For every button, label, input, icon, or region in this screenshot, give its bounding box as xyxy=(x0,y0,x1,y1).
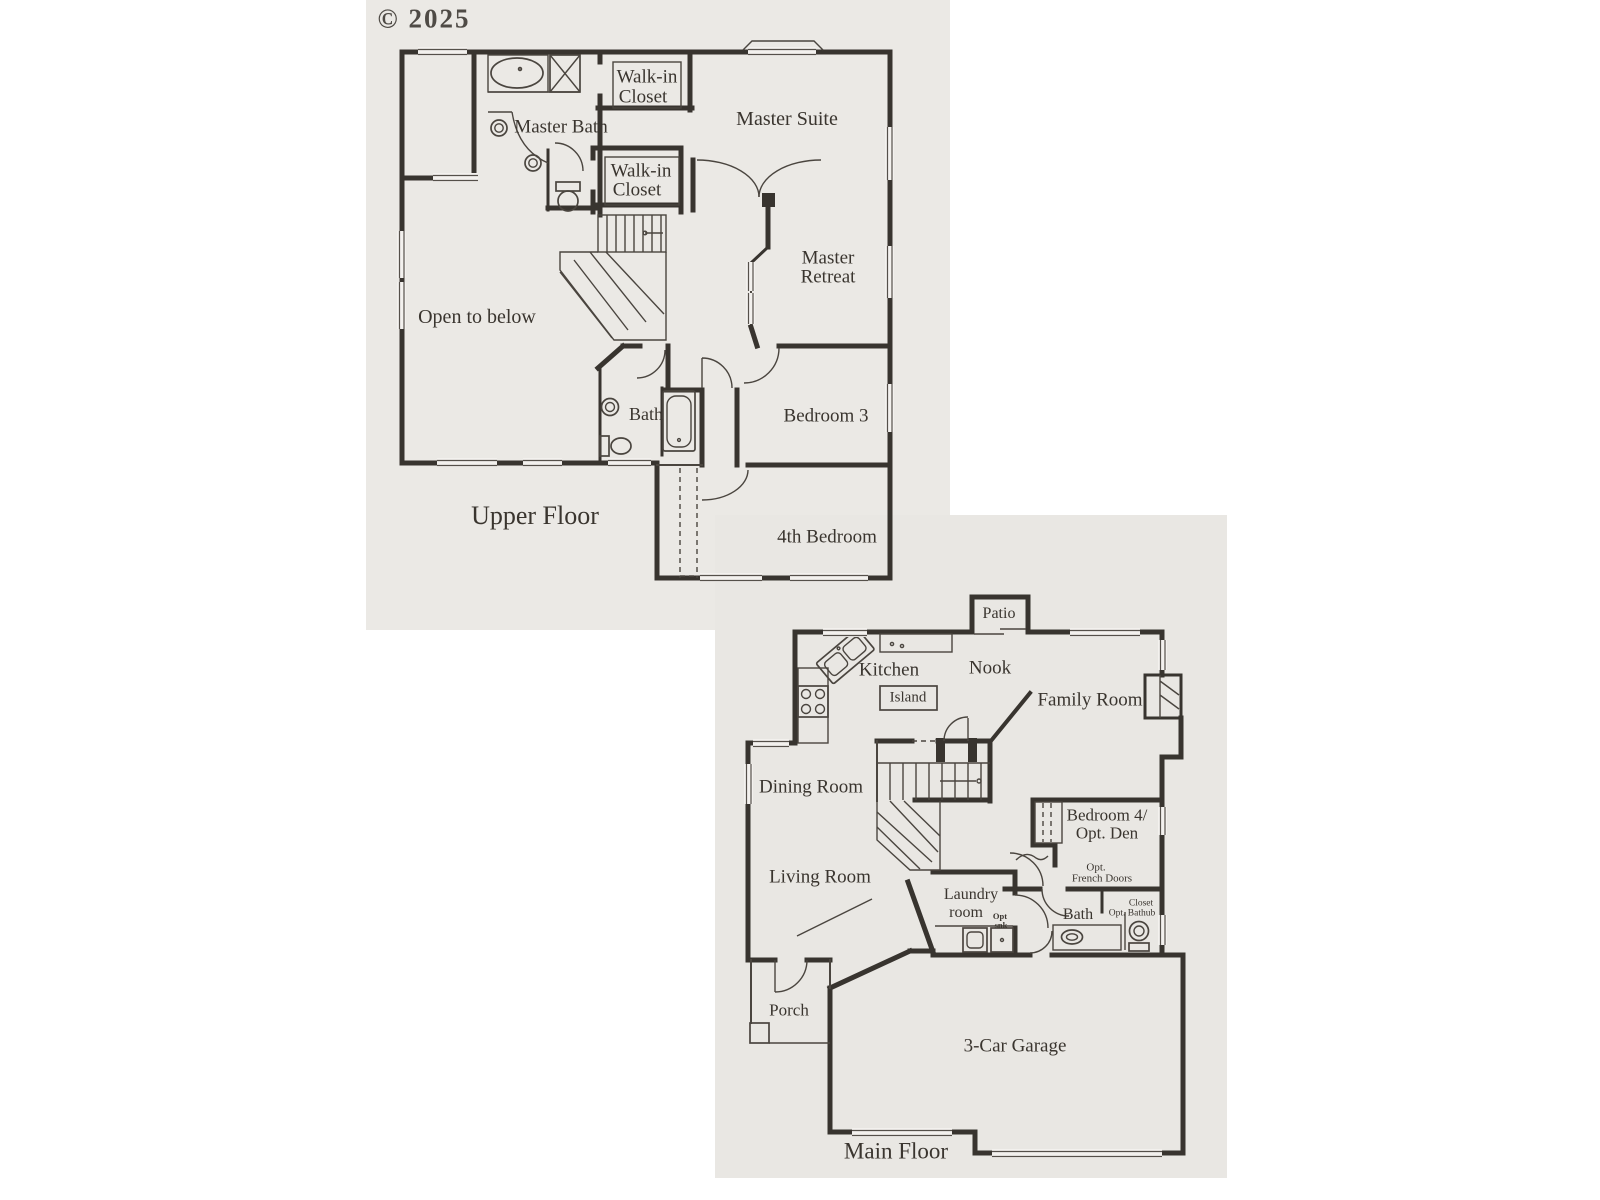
floor-plan-page: © 2025 Walk-in Closet Master Bath Master… xyxy=(0,0,1600,1200)
room-label-garage: 3-Car Garage xyxy=(964,1037,1067,1056)
room-label-bedroom-3: Bedroom 3 xyxy=(784,407,869,426)
note-opt-french-doors-line2: French Doors xyxy=(1072,874,1132,885)
floor-plan-drawing xyxy=(0,0,1600,1200)
upper-floor-title: Upper Floor xyxy=(471,503,599,529)
main-floor-title: Main Floor xyxy=(844,1140,948,1163)
room-label-walk-in-closet-1-line2: Closet xyxy=(619,88,668,107)
room-label-main-bath: Bath xyxy=(1063,907,1093,923)
room-label-open-to-below: Open to below xyxy=(418,307,536,327)
room-label-patio: Patio xyxy=(983,606,1016,622)
room-label-kitchen: Kitchen xyxy=(859,661,919,680)
upper-floor-fixtures xyxy=(488,55,695,456)
room-label-porch: Porch xyxy=(769,1002,809,1019)
room-label-master-suite: Master Suite xyxy=(736,109,838,129)
note-opt-bathtub: Opt. Bathub xyxy=(1109,909,1155,919)
copyright-text: © 2025 xyxy=(378,6,471,33)
room-label-master-retreat-line1: Master xyxy=(802,249,855,268)
room-label-dining-room: Dining Room xyxy=(759,778,863,797)
room-label-laundry-line2: room xyxy=(949,905,983,921)
room-label-walk-in-closet-2-line1: Walk-in xyxy=(611,162,672,181)
main-floor-stairs xyxy=(877,717,990,870)
room-label-walk-in-closet-2-line2: Closet xyxy=(613,181,662,200)
room-label-living-room: Living Room xyxy=(769,868,871,887)
room-label-bedroom-4-line1: Bedroom 4/ xyxy=(1067,807,1148,824)
note-opt-sink-line2: snk xyxy=(995,921,1008,930)
room-label-island: Island xyxy=(890,691,927,706)
room-label-upper-bath: Bath xyxy=(629,405,663,423)
room-label-bedroom-4-line2: Opt. Den xyxy=(1076,825,1138,842)
room-label-master-bath: Master Bath xyxy=(514,118,607,137)
upper-floor-stairs xyxy=(560,215,666,340)
room-label-master-retreat-line2: Retreat xyxy=(801,268,856,287)
room-label-family-room: Family Room xyxy=(1037,691,1142,710)
room-label-laundry-line1: Laundry xyxy=(944,887,998,903)
room-label-4th-bedroom: 4th Bedroom xyxy=(777,528,877,547)
room-label-walk-in-closet-1-line1: Walk-in xyxy=(617,68,678,87)
room-label-nook: Nook xyxy=(969,659,1011,678)
